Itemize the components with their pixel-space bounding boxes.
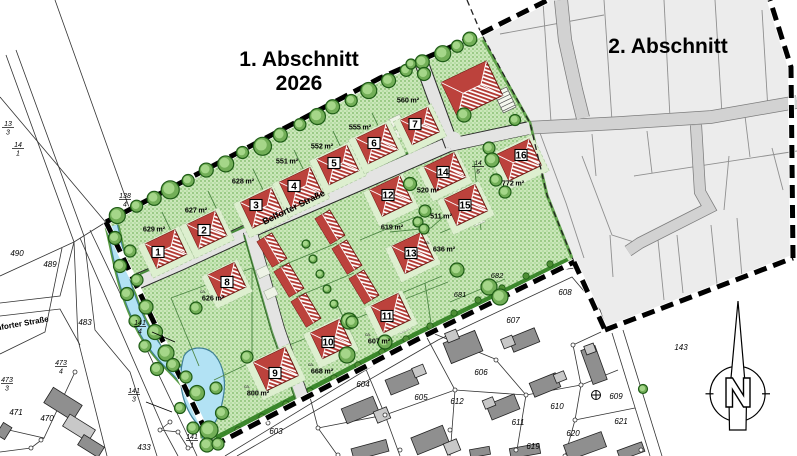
svg-text:608: 608 — [558, 288, 572, 297]
svg-text:141: 141 — [134, 320, 146, 327]
svg-text:2: 2 — [201, 226, 207, 237]
svg-text:605: 605 — [414, 393, 428, 402]
svg-text:610: 610 — [550, 402, 564, 411]
svg-text:626 m²: 626 m² — [202, 294, 225, 303]
svg-text:14: 14 — [14, 142, 22, 149]
svg-text:607: 607 — [506, 316, 520, 325]
svg-text:4: 4 — [59, 369, 63, 376]
svg-text:619 m²: 619 m² — [381, 223, 404, 232]
svg-text:800 m²: 800 m² — [247, 389, 270, 398]
svg-text:619: 619 — [526, 442, 540, 451]
svg-text:620: 620 — [566, 429, 580, 438]
svg-text:470: 470 — [40, 414, 54, 423]
svg-text:12: 12 — [382, 191, 394, 202]
svg-text:681: 681 — [454, 290, 467, 299]
svg-text:609: 609 — [609, 392, 623, 401]
svg-text:636 m²: 636 m² — [433, 245, 456, 254]
svg-text:1: 1 — [190, 443, 194, 450]
svg-text:489: 489 — [43, 260, 57, 269]
svg-text:668 m²: 668 m² — [311, 367, 334, 376]
svg-text:682: 682 — [491, 271, 504, 280]
svg-text:471: 471 — [9, 408, 22, 417]
svg-text:4: 4 — [123, 202, 127, 209]
svg-text:551 m²: 551 m² — [276, 157, 299, 166]
svg-text:ca.: ca. — [424, 240, 430, 245]
svg-text:11: 11 — [382, 312, 393, 323]
svg-text:511 m²: 511 m² — [430, 212, 452, 221]
svg-text:473: 473 — [55, 360, 67, 367]
svg-text:627 m²: 627 m² — [185, 206, 208, 215]
svg-text:10: 10 — [322, 338, 334, 349]
svg-text:8: 8 — [224, 278, 230, 289]
svg-text:604: 604 — [356, 380, 370, 389]
svg-text:1. Abschnitt: 1. Abschnitt — [239, 48, 358, 71]
svg-text:490: 490 — [10, 249, 24, 258]
svg-text:772 m²: 772 m² — [502, 179, 525, 188]
svg-text:143: 143 — [674, 343, 688, 352]
svg-text:14: 14 — [474, 160, 482, 167]
svg-text:552 m²: 552 m² — [311, 142, 334, 151]
svg-text:483: 483 — [78, 318, 92, 327]
svg-text:13: 13 — [4, 121, 12, 128]
svg-text:6: 6 — [371, 139, 377, 150]
svg-text:603: 603 — [269, 427, 283, 436]
svg-text:628 m²: 628 m² — [232, 177, 255, 186]
svg-text:621: 621 — [614, 417, 627, 426]
svg-text:141: 141 — [128, 388, 140, 395]
svg-text:16: 16 — [515, 151, 527, 162]
svg-text:3: 3 — [5, 386, 9, 393]
svg-text:3: 3 — [132, 397, 136, 404]
svg-text:1: 1 — [16, 151, 20, 158]
svg-text:555 m²: 555 m² — [349, 123, 372, 132]
svg-text:560 m²: 560 m² — [397, 96, 420, 105]
svg-text:433: 433 — [137, 443, 151, 452]
svg-text:141: 141 — [186, 434, 198, 441]
svg-text:2. Abschnitt: 2. Abschnitt — [608, 35, 727, 58]
svg-text:13: 13 — [405, 249, 417, 260]
svg-text:2026: 2026 — [276, 72, 323, 95]
svg-text:4: 4 — [138, 329, 142, 336]
svg-text:5: 5 — [331, 159, 337, 170]
svg-text:15: 15 — [459, 201, 471, 212]
svg-text:612: 612 — [450, 397, 464, 406]
svg-text:520 m²: 520 m² — [417, 186, 440, 195]
svg-text:138: 138 — [119, 193, 131, 200]
svg-text:6: 6 — [476, 169, 480, 176]
svg-text:7: 7 — [412, 120, 418, 131]
svg-text:607 m²: 607 m² — [368, 337, 391, 346]
svg-text:629 m²: 629 m² — [143, 225, 166, 234]
svg-text:1: 1 — [155, 248, 161, 259]
svg-text:3: 3 — [6, 130, 10, 137]
svg-text:606: 606 — [474, 368, 488, 377]
svg-text:3: 3 — [253, 201, 259, 212]
svg-text:611: 611 — [512, 418, 525, 427]
svg-text:9: 9 — [272, 369, 278, 380]
svg-text:4: 4 — [291, 182, 297, 193]
svg-text:473: 473 — [1, 377, 13, 384]
svg-text:14: 14 — [437, 168, 449, 179]
